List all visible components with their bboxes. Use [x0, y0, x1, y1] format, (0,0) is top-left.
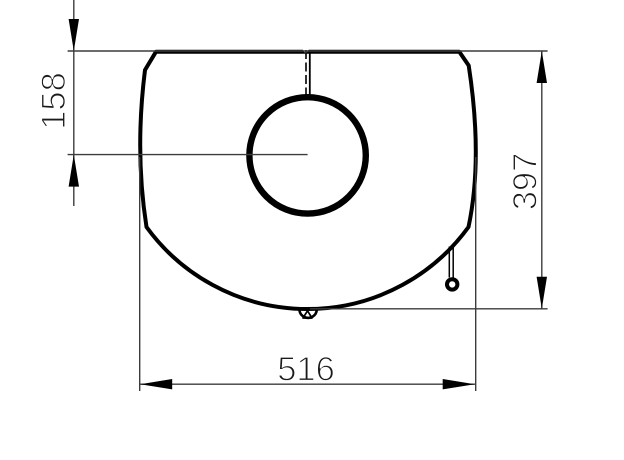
svg-text:516: 516: [277, 351, 335, 389]
svg-text:158: 158: [35, 72, 73, 130]
svg-text:397: 397: [507, 153, 545, 211]
